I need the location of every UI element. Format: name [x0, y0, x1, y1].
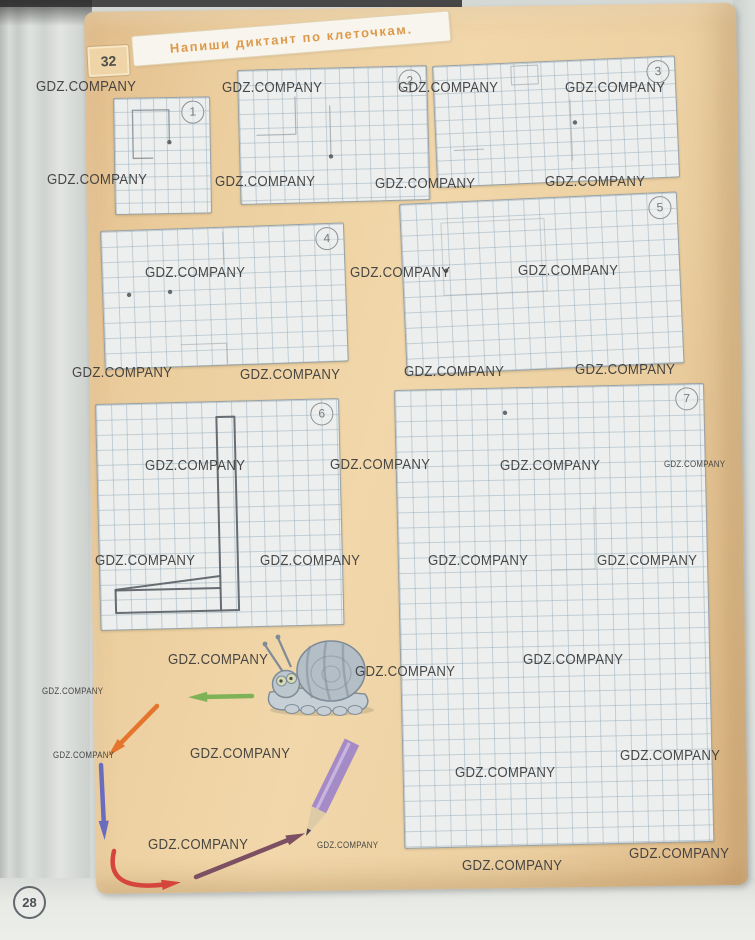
task-number-box: 32 — [87, 45, 130, 77]
pencil-drawing — [96, 399, 343, 630]
book-page-edges — [0, 0, 90, 940]
pencil-drawing — [400, 192, 683, 374]
pencil-drawing — [101, 224, 348, 369]
photographed-workbook-page: 32 Напиши диктант по клеточкам. 1234567 — [0, 0, 755, 940]
dictation-grid-4: 4 — [100, 222, 349, 369]
dictation-grid-7: 7 — [394, 383, 714, 849]
pencil-drawing — [395, 384, 713, 848]
dictation-grid-6: 6 — [95, 398, 344, 631]
task-number: 32 — [100, 53, 116, 70]
dictation-grid-3: 3 — [432, 55, 680, 187]
dictation-grid-1: 1 — [113, 96, 212, 215]
page-number: 28 — [22, 895, 36, 910]
dictation-grid-5: 5 — [399, 191, 685, 375]
pencil-drawing — [433, 56, 679, 186]
dictation-grid-2: 2 — [237, 65, 430, 205]
page-number-badge: 28 — [13, 886, 46, 919]
photo-top-shadow — [0, 0, 462, 7]
